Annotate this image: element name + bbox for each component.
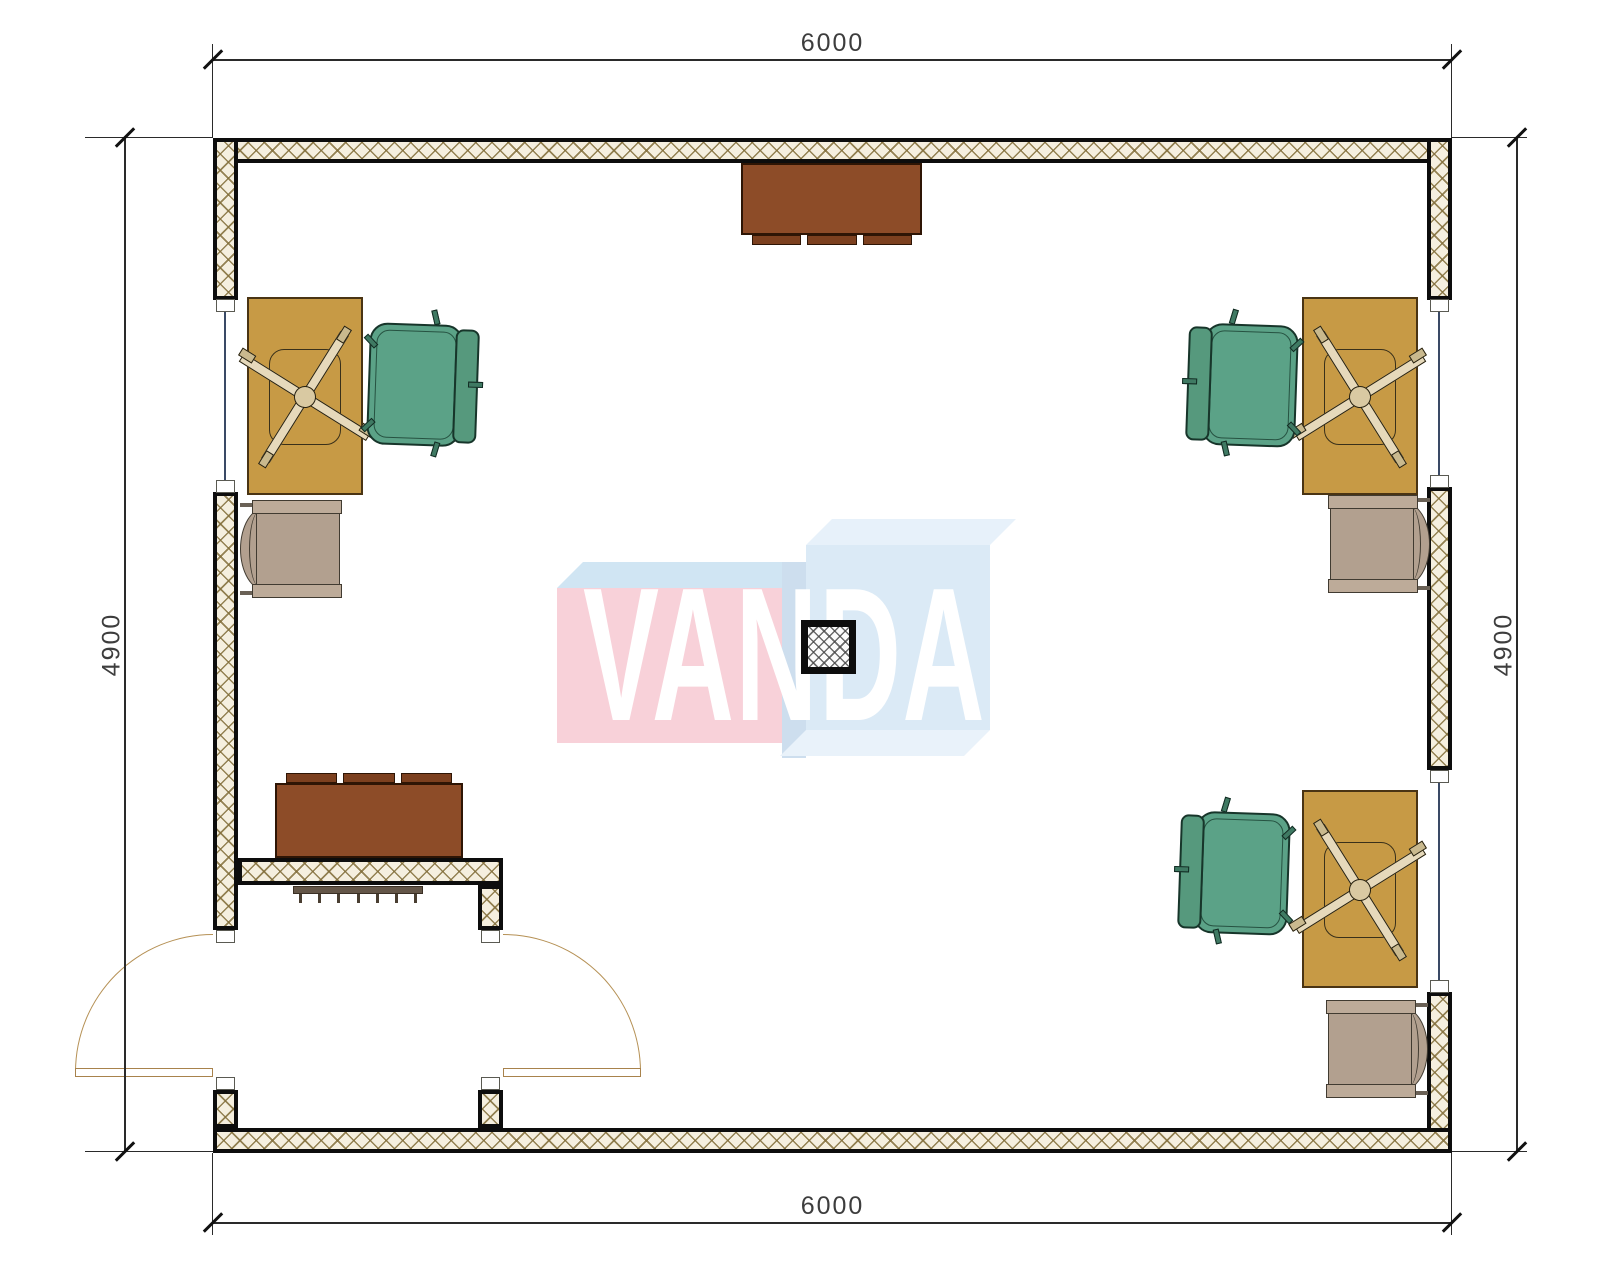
armchair-right-middle bbox=[1320, 495, 1430, 593]
office-chair-right-bottom bbox=[1175, 804, 1292, 943]
radiator-fin bbox=[318, 894, 321, 903]
sideboard-vestibule-front bbox=[286, 773, 452, 783]
extension-line bbox=[85, 1151, 213, 1152]
window-jamb bbox=[1430, 980, 1449, 993]
radiator-fin bbox=[357, 894, 360, 903]
dimension-label-bottom: 6000 bbox=[213, 1192, 1452, 1221]
radiator-fin bbox=[414, 894, 417, 903]
desk-right-top bbox=[1302, 297, 1418, 495]
window-jamb bbox=[1430, 475, 1449, 488]
wall-vestibule-return bbox=[478, 885, 503, 930]
wall-vestibule-partition bbox=[238, 858, 503, 885]
wall-right-pier bbox=[1427, 487, 1452, 770]
sideboard-top-front bbox=[752, 235, 912, 245]
window-jamb bbox=[216, 299, 235, 312]
window-jamb bbox=[1430, 299, 1449, 312]
window-jamb bbox=[216, 480, 235, 493]
office-chair-right-top bbox=[1183, 316, 1300, 455]
window-jamb bbox=[1430, 770, 1449, 783]
door-jamb bbox=[481, 930, 500, 943]
sideboard-vestibule bbox=[275, 783, 463, 858]
wall-left-upper bbox=[213, 138, 238, 300]
radiator bbox=[293, 886, 423, 894]
radiator-fin bbox=[337, 894, 340, 903]
door-leaf-left bbox=[75, 1068, 213, 1077]
wall-right-upper bbox=[1427, 138, 1452, 300]
radiator-fin bbox=[299, 894, 302, 903]
armchair-left-middle bbox=[240, 500, 350, 598]
door-jamb bbox=[216, 930, 235, 943]
wall-left-middle bbox=[213, 492, 238, 930]
door-leaf-right bbox=[503, 1068, 641, 1077]
wall-bottom bbox=[213, 1128, 1452, 1153]
floor-plan-canvas: VANDA 6000 6000 bbox=[0, 0, 1600, 1280]
door-jamb bbox=[216, 1077, 235, 1090]
dimension-line-top bbox=[213, 59, 1452, 61]
dimension-label-left: 4900 bbox=[98, 590, 127, 700]
wall-stub-entry-left bbox=[213, 1090, 238, 1128]
desk-right-bottom bbox=[1302, 790, 1418, 988]
radiator-fin bbox=[395, 894, 398, 903]
sideboard-top bbox=[741, 163, 922, 235]
dimension-line-bottom bbox=[213, 1222, 1452, 1224]
dimension-label-right: 4900 bbox=[1490, 590, 1519, 700]
watermark-text: VANDA bbox=[583, 560, 986, 750]
door-jamb bbox=[481, 1077, 500, 1090]
door-swing-arc-right bbox=[503, 934, 641, 1072]
door-swing-arc-left bbox=[75, 934, 213, 1072]
dimension-label-top: 6000 bbox=[213, 29, 1452, 58]
structural-column bbox=[801, 620, 856, 674]
radiator-fin bbox=[376, 894, 379, 903]
office-chair-left-top bbox=[366, 316, 483, 455]
desk-left-top bbox=[247, 297, 363, 495]
armchair-right-bottom bbox=[1318, 1000, 1428, 1098]
wall-top bbox=[213, 138, 1452, 163]
extension-line bbox=[85, 137, 213, 138]
wall-stub-entry-right bbox=[478, 1090, 503, 1128]
watermark-right-box-top bbox=[806, 519, 1016, 545]
